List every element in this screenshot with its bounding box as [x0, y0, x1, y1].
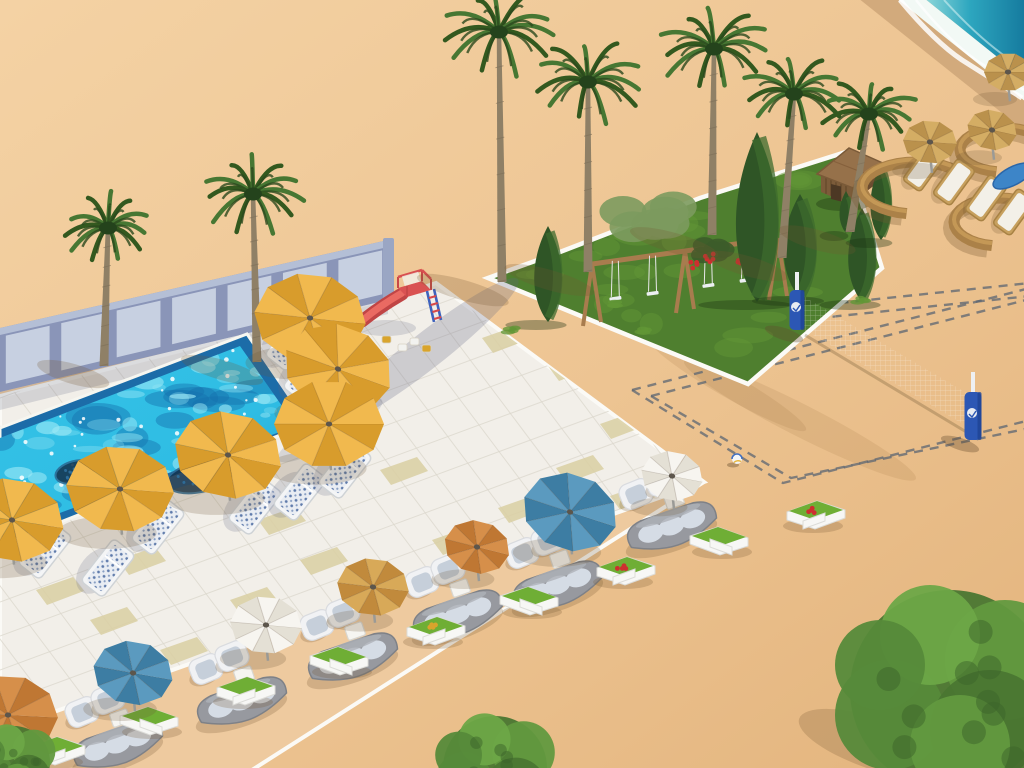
hut-door — [831, 184, 841, 201]
kids-chair — [382, 336, 391, 343]
umbrella-finial — [326, 421, 332, 426]
cypress-shadow — [819, 300, 880, 310]
grass-tuft — [607, 300, 623, 308]
umbrella-shadow — [630, 498, 687, 517]
palm-crown-center — [99, 222, 117, 235]
kids-chair — [398, 344, 407, 351]
umbrella-canopy — [274, 382, 384, 466]
palm-crown-center — [579, 76, 597, 89]
palm-crown-center — [785, 88, 803, 101]
umbrella-finial — [1005, 69, 1011, 74]
tree-foliage — [835, 620, 925, 710]
scene-canvas — [0, 0, 1024, 768]
palm-crown-center — [244, 188, 262, 201]
palm-crown-center — [490, 26, 508, 39]
beach-resort-render — [0, 0, 1024, 768]
palm-crown-center — [860, 108, 878, 121]
umbrella-shadow — [892, 163, 942, 179]
umbrella-shadow — [956, 150, 1002, 165]
kids-chair — [410, 338, 419, 345]
kids-chair — [422, 345, 431, 352]
palm-crown-center — [705, 43, 723, 56]
